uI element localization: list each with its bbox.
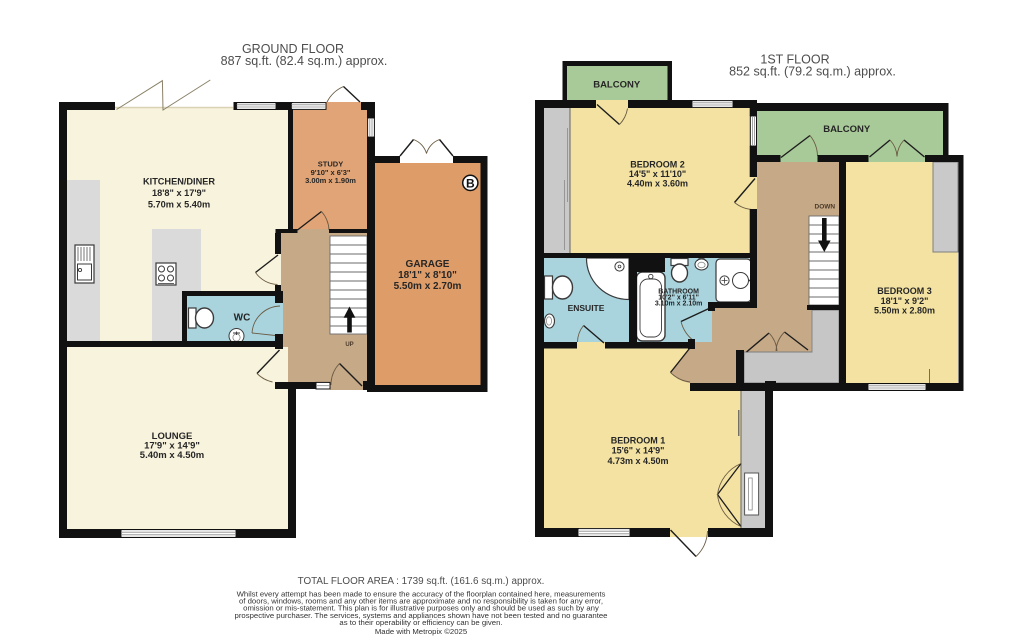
svg-text:KITCHEN/DINER: KITCHEN/DINER (143, 177, 215, 187)
svg-text:B: B (466, 176, 475, 190)
svg-text:Made with Metropix ©2025: Made with Metropix ©2025 (375, 627, 467, 636)
svg-text:4.40m x 3.60m: 4.40m x 3.60m (627, 178, 688, 188)
svg-text:3.10m x 2.10m: 3.10m x 2.10m (655, 301, 702, 308)
svg-text:UP: UP (345, 342, 353, 348)
svg-text:WC: WC (234, 313, 251, 324)
svg-text:18'8" x 17'9": 18'8" x 17'9" (152, 188, 206, 198)
svg-text:BALCONY: BALCONY (823, 124, 871, 135)
svg-text:5.40m x 4.50m: 5.40m x 4.50m (140, 450, 204, 461)
svg-text:BEDROOM 1: BEDROOM 1 (611, 435, 666, 445)
svg-text:5.70m x 5.40m: 5.70m x 5.40m (148, 200, 210, 210)
svg-text:DOWN: DOWN (815, 204, 836, 211)
svg-text:as to their operability or eff: as to their operability or efficiency ca… (339, 618, 502, 627)
svg-text:GARAGE: GARAGE (406, 259, 450, 270)
svg-text:BALCONY: BALCONY (593, 80, 641, 91)
svg-text:5.50m x 2.70m: 5.50m x 2.70m (394, 281, 462, 292)
svg-text:5.50m x 2.80m: 5.50m x 2.80m (874, 306, 935, 316)
svg-text:BEDROOM 3: BEDROOM 3 (877, 286, 932, 296)
svg-text:TOTAL FLOOR AREA : 1739 sq.ft.: TOTAL FLOOR AREA : 1739 sq.ft. (161.6 sq… (298, 576, 545, 587)
svg-text:15'6" x 14'9": 15'6" x 14'9" (612, 446, 665, 456)
svg-text:3.00m x 1.90m: 3.00m x 1.90m (305, 176, 356, 185)
svg-text:ENSUITE: ENSUITE (568, 303, 605, 313)
svg-text:852 sq.ft. (79.2 sq.m.) approx: 852 sq.ft. (79.2 sq.m.) approx. (729, 64, 896, 78)
svg-text:4.73m x 4.50m: 4.73m x 4.50m (607, 456, 668, 466)
svg-text:887 sq.ft. (82.4 sq.m.) approx: 887 sq.ft. (82.4 sq.m.) approx. (221, 54, 388, 68)
svg-text:18'1" x 8'10": 18'1" x 8'10" (398, 270, 457, 281)
